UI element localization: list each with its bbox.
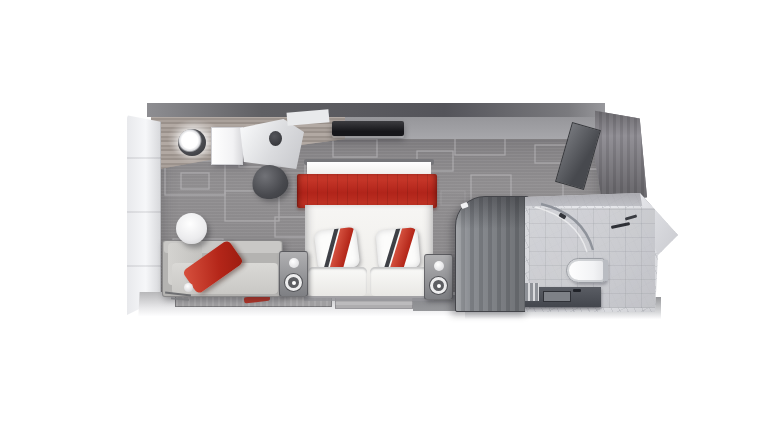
- round-side-table: [176, 213, 207, 244]
- nightstand-right: [424, 254, 453, 300]
- pillow-left: [314, 227, 361, 272]
- stateroom-floorplan: [127, 95, 687, 325]
- nightstand-left: [279, 251, 308, 297]
- towel-shelf: [523, 283, 539, 301]
- lamp-shade-icon: [285, 274, 302, 291]
- faucet-icon: [573, 289, 581, 292]
- bathroom: [521, 188, 683, 315]
- headboard-cushion-right: [370, 267, 430, 296]
- toilet: [566, 258, 606, 283]
- toilet-tank: [603, 260, 608, 281]
- left-wall: [127, 105, 161, 315]
- bed-base: [304, 296, 434, 301]
- ceiling-light: [178, 129, 206, 156]
- minibar-cabinet: [211, 127, 243, 165]
- wardrobe-detail: [460, 202, 468, 209]
- pillow-right: [375, 227, 420, 271]
- right-wall: [595, 107, 647, 203]
- lamp-icon: [289, 258, 299, 268]
- bed-red-throw: [297, 174, 437, 208]
- lamp-shade-icon: [430, 277, 447, 294]
- headboard-cushion-left: [308, 267, 367, 296]
- counter-kettle: [269, 131, 282, 146]
- sink-basin: [543, 291, 571, 302]
- sofa-leg: [184, 283, 193, 292]
- top-wall-edge: [147, 103, 605, 117]
- tv: [332, 121, 404, 136]
- wardrobe: [455, 196, 529, 312]
- lamp-icon: [434, 261, 444, 271]
